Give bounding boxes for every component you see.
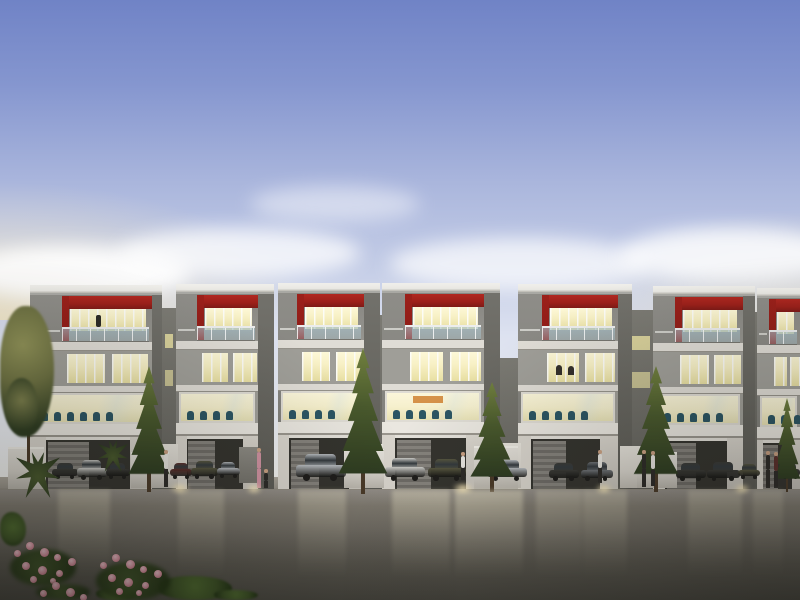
flower-blossom [124,578,133,587]
car-wheel [696,476,700,480]
person-legs [642,469,646,486]
foreground-foliage [214,590,258,600]
flower-blossom [54,554,61,561]
floor-slab [518,341,618,350]
flower-blossom [142,582,149,589]
roof-slab [382,283,500,293]
ground-light-glow [448,484,478,493]
interior-chair [555,411,562,420]
floor-slab [176,385,258,392]
person-legs [164,469,168,486]
red-accent-band [542,295,618,308]
parked-car [52,463,78,478]
car-wheel [603,476,608,481]
column-rail-line [384,328,403,330]
link-wall-window [165,334,173,348]
flower-blossom [40,590,47,597]
pedestrian [641,450,647,487]
car-wheel [412,475,418,481]
car-wheel [391,475,397,481]
parked-car [707,462,740,480]
interior-chair [328,410,335,419]
flower-blossom [112,554,120,562]
roof-slab [518,284,632,294]
column-rail-line [178,329,195,331]
floor-slab [176,341,258,350]
second-floor-window [233,353,257,382]
car-wheel [741,475,745,479]
light-reflection-streak [298,490,346,578]
flower-blossom [154,570,162,578]
ground-light-glow [592,485,616,493]
interior-chair [432,410,439,419]
interior-chair [690,413,697,422]
second-floor-window [450,352,482,381]
balcony-glass-rail [405,325,481,340]
flower-blossom [100,562,107,569]
interior-chair [703,413,710,422]
window-occupant [568,366,574,375]
car-wheel [553,476,557,480]
flower-blossom [22,562,30,570]
fascia-band [176,423,258,436]
parked-car [191,461,218,478]
roof-slab [653,286,755,296]
pedestrian [765,451,771,488]
parked-car [217,462,240,477]
car-wheel [433,475,438,480]
light-reflection-streak [583,490,627,578]
second-floor-window [67,354,105,383]
flower-blossom [52,582,60,590]
person-torso [774,456,778,471]
person-legs [774,471,778,488]
car-wheel [585,476,590,481]
interior-chair [80,412,87,421]
balcony-glass-rail [197,326,255,341]
balcony-glass-rail [62,327,149,342]
flower-blossom [56,570,63,577]
tree-canopy-lobe [5,378,37,434]
flower-blossom [66,588,75,597]
person-torso [461,456,465,468]
conifer-tree [336,348,390,494]
column-rail-line [759,333,767,335]
red-accent-band [405,294,484,307]
car-wheel [303,474,310,481]
ground-light-glow [243,485,265,493]
balcony-glass-rail [297,325,361,340]
fascia-band [518,423,618,436]
window-figure [96,315,101,327]
person-torso [651,455,655,470]
cloud [120,228,360,278]
interior-chair [406,410,413,419]
ground-floor-glass [385,391,481,422]
interior-chair [393,410,400,419]
light-reflection-streak [392,490,450,578]
parked-car [738,464,760,478]
flower-blossom [40,548,49,557]
conifer-foliage [631,366,681,474]
ground-floor-glass [521,392,615,423]
person-torso [264,473,268,481]
pedestrian [773,452,779,488]
unit-side-face [743,296,755,489]
red-accent-band [297,294,364,307]
interior-chair [542,411,549,420]
interior-cabinet [413,396,444,403]
car-wheel [712,476,717,481]
interior-chair [716,413,723,422]
garage-wall-left [278,435,289,489]
roof-slab [278,283,380,293]
floor-slab [518,385,618,392]
pedestrian [597,450,603,483]
flower-blossom [126,560,135,569]
person-torso [164,454,168,470]
flower-cluster [36,580,90,600]
ground-floor-glass [179,392,255,423]
second-floor-window [714,355,741,384]
floor-slab [382,340,484,349]
parked-car [549,463,579,480]
interior-chair [581,411,588,420]
interior-chair [213,411,220,420]
interior-chair [67,412,74,421]
interior-chair [187,411,194,420]
roof-slab [30,285,162,295]
car-wheel [569,476,573,480]
light-reflection-streak [753,490,783,578]
conifer-tree [468,382,516,492]
flower-blossom [26,542,34,550]
interior-chair [315,410,322,419]
floor-slab [757,345,800,354]
car-wheel [70,475,74,479]
second-floor-window [790,357,800,386]
column-rail-line [280,328,295,330]
car-wheel [454,475,459,480]
interior-chair [289,410,296,419]
car-wheel [209,474,213,478]
flower-blossom [14,550,21,557]
interior-chair [54,412,61,421]
parked-car [385,458,425,480]
interior-chair [568,411,575,420]
flower-blossom [140,566,147,573]
interior-chair [529,411,536,420]
interior-chair [445,410,452,419]
parked-car [77,460,107,479]
interior-chair [226,411,233,420]
interior-chair [200,411,207,420]
interior-chair [419,410,426,419]
balcony-glass-rail [769,330,797,345]
conifer-foliage [468,382,516,477]
roof-slab [757,288,800,298]
light-reflection-streak [536,490,582,578]
flower-blossom [116,588,123,595]
conifer-tree [631,366,681,492]
light-reflection-streak [178,490,224,578]
car-wheel [220,474,224,478]
flower-blossom [136,590,142,596]
scene [0,0,800,600]
second-floor-window [774,357,787,386]
cloud [620,228,800,282]
cloud [250,186,420,222]
parked-car [170,463,192,478]
car-wheel [195,474,199,478]
column-rail-line [520,329,540,331]
pedestrian [263,469,269,488]
second-floor-window [410,352,443,381]
floor-slab [653,343,743,352]
flower-blossom [38,566,47,575]
townhouse-unit [518,284,632,489]
car-wheel [753,475,757,479]
second-floor-window [302,352,330,381]
person-legs [264,481,268,488]
person-legs [461,468,465,480]
interior-chair [106,412,113,421]
balcony-glass-rail [675,328,740,343]
flower-blossom [108,574,116,582]
deciduous-tree [0,306,54,466]
window-occupant [556,365,562,375]
ground-light-glow [730,485,754,493]
light-reflection-streak [455,490,523,578]
car-wheel [729,476,734,481]
column-rail-line [655,331,673,333]
red-accent-band [197,295,258,308]
person-legs [766,470,770,487]
car-wheel [233,474,237,478]
person-legs [651,470,655,486]
car-wheel [173,475,177,479]
car-wheel [185,475,189,479]
second-floor-window [680,355,709,384]
roof-slab [176,284,274,294]
balcony-glass-rail [542,326,615,341]
pedestrian [256,448,262,488]
conifer-foliage [336,348,390,474]
car-wheel [109,475,113,479]
interior-chair [302,410,309,419]
second-floor-window [202,353,228,382]
second-floor-window [585,353,615,382]
person-torso [766,455,770,471]
person-legs [598,468,602,483]
red-accent-band [675,297,743,310]
red-accent-band [62,296,152,309]
light-reflection-streak [688,490,742,578]
person-torso [598,454,602,468]
interior-chair [93,412,100,421]
flower-blossom [68,558,76,566]
pedestrian [163,450,169,487]
second-floor-window [547,353,579,382]
ground-light-glow [166,484,194,493]
person-torso [642,454,646,470]
person-torso [257,452,261,469]
flower-cluster [96,552,170,600]
flower-blossom [80,594,87,600]
pedestrian [650,451,656,486]
car-wheel [81,475,86,480]
pedestrian [460,452,466,480]
floor-slab [757,389,800,396]
